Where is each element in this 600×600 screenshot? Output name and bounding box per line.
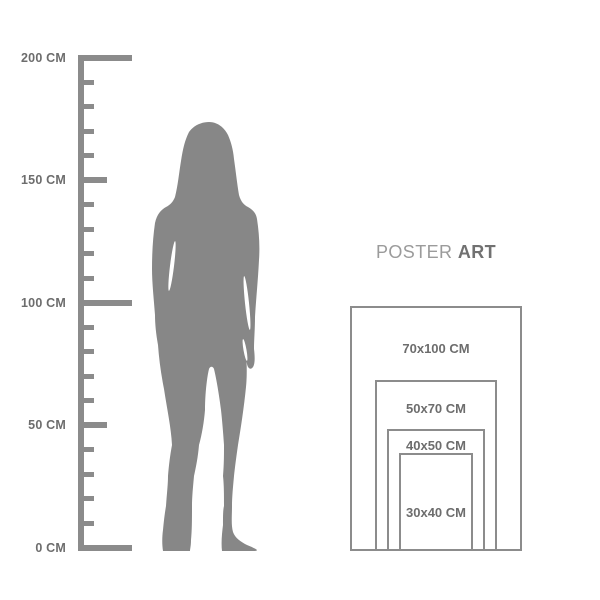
size-label-50x70: 50x70 CM <box>377 401 496 416</box>
ruler-tick-70cm <box>78 374 94 379</box>
ruler-tick-170cm <box>78 129 94 134</box>
ruler-tick-10cm <box>78 521 94 526</box>
ruler-tick-20cm <box>78 496 94 501</box>
size-rect-30x40: 30x40 CM <box>399 453 473 551</box>
ruler-tick-90cm <box>78 325 94 330</box>
standing-woman-silhouette-icon <box>150 119 268 554</box>
size-label-70x100: 70x100 CM <box>352 341 520 356</box>
ruler-label-150cm: 150 CM <box>16 172 66 188</box>
brand-title-bold: ART <box>458 242 496 262</box>
ruler-tick-0cm <box>78 545 132 551</box>
ruler-label-200cm: 200 CM <box>16 50 66 66</box>
ruler-tick-190cm <box>78 80 94 85</box>
ruler-tick-120cm <box>78 251 94 256</box>
ruler-tick-160cm <box>78 153 94 158</box>
ruler-label-50cm: 50 CM <box>16 417 66 433</box>
ruler-tick-100cm <box>78 300 132 306</box>
ruler-tick-200cm <box>78 55 132 61</box>
ruler-tick-50cm <box>78 422 107 428</box>
ruler-label-100cm: 100 CM <box>16 295 66 311</box>
ruler-label-0cm: 0 CM <box>16 540 66 556</box>
size-guide-diagram: 200 CM150 CM100 CM50 CM0 CM POSTER ART 7… <box>0 0 600 600</box>
brand-title: POSTER ART <box>350 242 522 263</box>
brand-title-regular: POSTER <box>376 242 452 262</box>
ruler-tick-150cm <box>78 177 107 183</box>
ruler-tick-80cm <box>78 349 94 354</box>
size-label-40x50: 40x50 CM <box>389 438 483 453</box>
ruler-tick-110cm <box>78 276 94 281</box>
woman-silhouette-shape <box>152 122 259 551</box>
ruler-tick-180cm <box>78 104 94 109</box>
size-label-30x40: 30x40 CM <box>401 505 471 520</box>
ruler-tick-60cm <box>78 398 94 403</box>
ruler-tick-140cm <box>78 202 94 207</box>
ruler-tick-30cm <box>78 472 94 477</box>
ruler-tick-130cm <box>78 227 94 232</box>
ruler-tick-40cm <box>78 447 94 452</box>
